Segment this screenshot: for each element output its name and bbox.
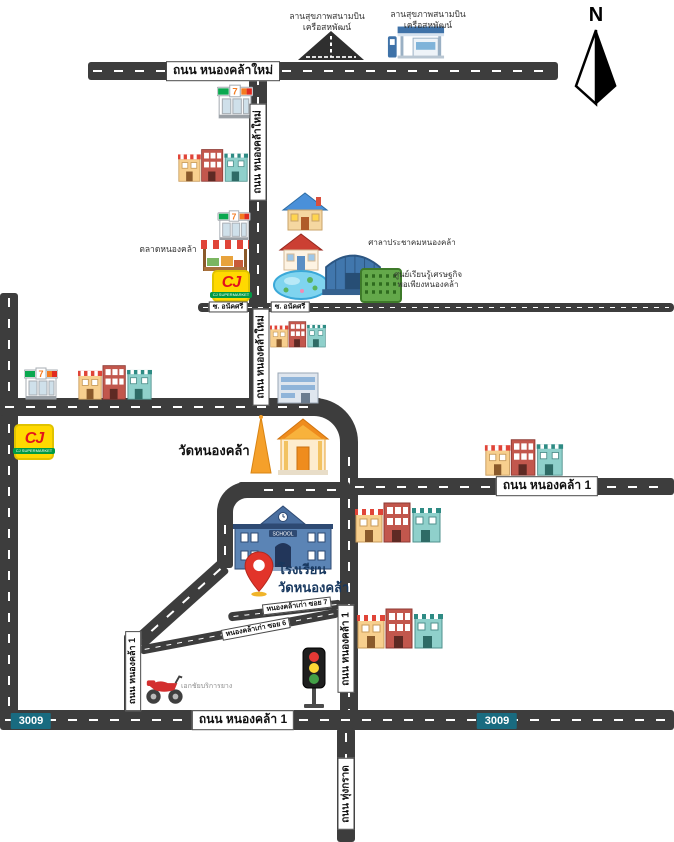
shops-icon-right-mid xyxy=(355,499,441,545)
airstrip-label-line2: เครือสหพัฒน์ xyxy=(303,22,351,32)
office-building-icon xyxy=(276,372,320,404)
school-label: โรงเรียน วัดหนองคล้า xyxy=(278,561,349,596)
road-label-soi-anaksri-right: ซ. อนัคศรี xyxy=(271,301,310,312)
temple-label: วัดหนองคล้า xyxy=(178,443,249,459)
seven-eleven-icon-top xyxy=(217,82,253,120)
cj-supermarket-logo: CJ CJ SUPERMARKET xyxy=(212,270,250,302)
school-label-line1: โรงเรียน xyxy=(278,562,326,577)
temple-icon xyxy=(240,413,332,477)
shops-icon-left xyxy=(78,360,152,404)
road-nongkhla-mai-top xyxy=(88,62,558,80)
house-icon-blue-roof xyxy=(280,190,330,232)
cj-logo-subtext-2: CJ SUPERMARKET xyxy=(13,448,55,454)
airstrip-label: ลานสุขภาพสนามบิน เครือสหพัฒน์ xyxy=(289,11,364,32)
shops-icon-row2 xyxy=(270,314,326,354)
road-label-nongkhla-mai-v2: ถนน หนองคล้าใหม่ xyxy=(253,308,270,405)
cj-logo-subtext: CJ SUPERMARKET xyxy=(210,292,252,298)
shops-icon-right-lower xyxy=(357,605,443,651)
compass-north-arrow-icon xyxy=(567,28,625,108)
gas-station-label: ลานสุขภาพสนามบิน เครือสหพัฒน์ xyxy=(390,9,465,30)
shops-icon-row1 xyxy=(178,142,248,188)
map-canvas: 7 xyxy=(0,0,674,842)
market-label: ตลาดหนองคล้า xyxy=(139,244,196,255)
cj-supermarket-logo-left: CJ CJ SUPERMARKET xyxy=(14,424,54,460)
school-label-line2: วัดหนองคล้า xyxy=(278,580,349,595)
community-hall-label: ศาลาประชาคมหนองคล้า xyxy=(368,238,455,248)
learning-center-label: ศูนย์เรียนรู้เศรษฐกิจ พอเพียงหนองคล้า xyxy=(394,270,462,290)
tire-service-label: เอกชัยบริการยาง xyxy=(181,683,232,692)
cj-logo-text-2: CJ xyxy=(25,431,43,447)
road-label-nongkhla-mai-top: ถนน หนองคล้าใหม่ xyxy=(166,61,280,81)
road-label-soi-anaksri-left: ซ. อนัคศรี xyxy=(209,301,248,312)
motorcycle-repair-icon xyxy=(143,668,185,706)
road-label-nongkhla1-left: ถนน หนองคล้า 1 xyxy=(125,631,141,711)
route-badge-3009-right: 3009 xyxy=(477,713,517,729)
gas-station-label-line1: ลานสุขภาพสนามบิน xyxy=(390,9,465,19)
road-label-thung-krat: ถนน ทุ่งกราด xyxy=(338,758,355,830)
runway-icon xyxy=(296,30,366,62)
road-school-loop-top xyxy=(238,482,350,498)
compass-north-label: N xyxy=(589,4,603,27)
road-nongkhla1-bottom xyxy=(0,710,674,730)
shops-icon-right-upper xyxy=(480,437,568,477)
learning-center-label-line2: พอเพียงหนองคล้า xyxy=(398,280,459,289)
cj-logo-text: CJ xyxy=(222,275,240,291)
route-badge-3009-left: 3009 xyxy=(11,713,51,729)
road-left-vertical xyxy=(0,293,18,723)
learning-center-label-line1: ศูนย์เรียนรู้เศรษฐกิจ xyxy=(394,270,462,279)
road-label-nongkhla-mai-v1: ถนน หนองคล้าใหม่ xyxy=(250,103,267,200)
road-label-nongkhla1-bottom: ถนน หนองคล้า 1 xyxy=(192,710,294,730)
road-label-nongkhla1-right: ถนน หนองคล้า 1 xyxy=(496,476,598,496)
location-pin-icon xyxy=(241,550,277,598)
road-label-nongkhla1-mid: ถนน หนองคล้า 1 xyxy=(338,605,355,693)
seven-eleven-icon-left xyxy=(24,364,58,402)
traffic-light-icon xyxy=(295,646,333,710)
gas-station-label-line2: เครือสหพัฒน์ xyxy=(404,20,452,30)
airstrip-label-line1: ลานสุขภาพสนามบิน xyxy=(289,11,364,21)
